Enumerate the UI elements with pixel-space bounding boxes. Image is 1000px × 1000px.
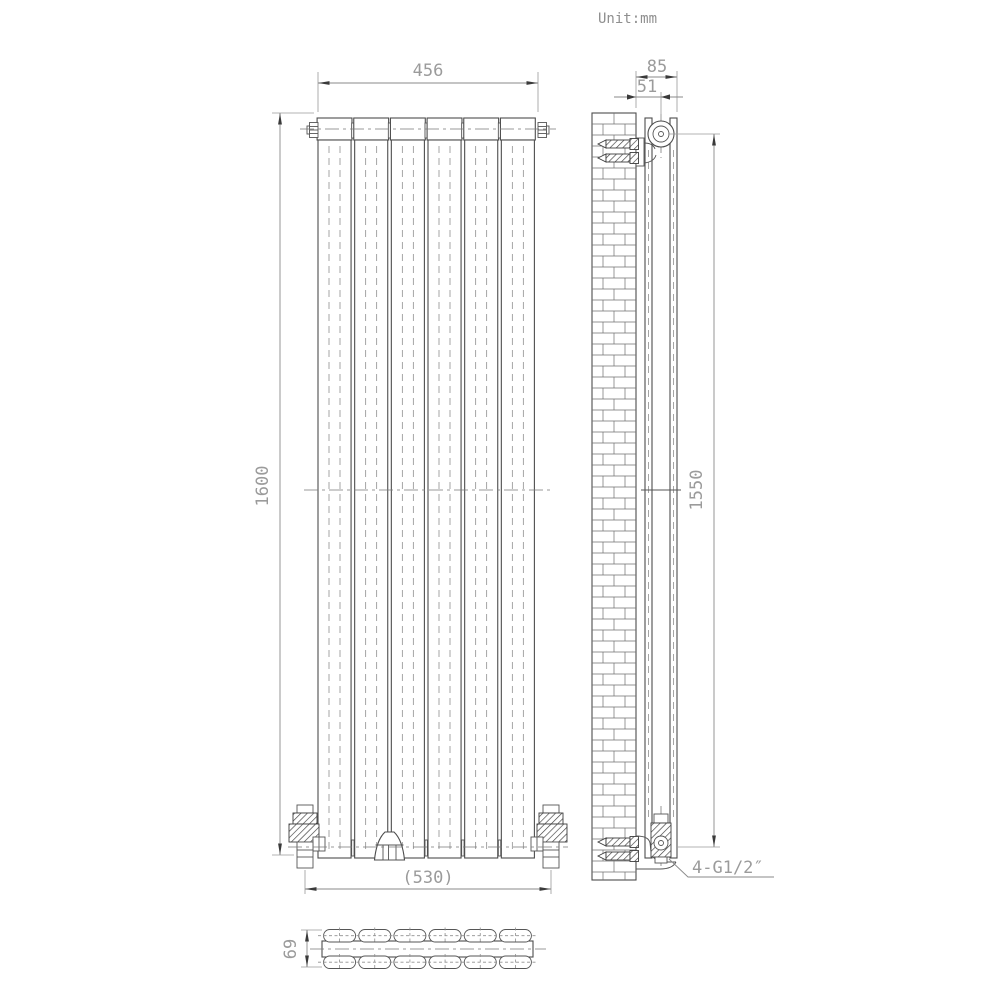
side-view bbox=[592, 113, 681, 880]
dim-overall-width: 456 bbox=[318, 61, 538, 112]
unit-label: Unit:mm bbox=[598, 11, 657, 27]
section-view bbox=[310, 928, 546, 971]
overall-width-label: 456 bbox=[413, 61, 444, 81]
bottom-valve-section bbox=[651, 806, 671, 866]
front-view bbox=[288, 118, 568, 868]
front-panels bbox=[317, 118, 535, 858]
left-end-plug-icon bbox=[307, 123, 318, 138]
right-end-plug-icon bbox=[538, 123, 549, 138]
valve-centres-label: (530) bbox=[402, 868, 453, 888]
dim-section-depth: 69 bbox=[281, 930, 322, 967]
wall-to-front-label: 85 bbox=[647, 57, 667, 77]
dim-valve-centres: (530) bbox=[305, 868, 551, 894]
dim-overall-height: 1600 bbox=[253, 113, 314, 855]
wall-to-pipe-centre-label: 51 bbox=[637, 77, 657, 97]
right-valve bbox=[531, 805, 567, 868]
wall-anchor-screws bbox=[598, 139, 639, 862]
section-depth-label: 69 bbox=[281, 939, 301, 959]
technical-drawing-canvas: 456 1600 (530) 85 51 bbox=[0, 0, 1000, 1000]
inlet-height-label: 1550 bbox=[687, 470, 707, 511]
radiator-dimension-sheet: 456 1600 (530) 85 51 bbox=[0, 0, 1000, 1000]
connection-thread-label: 4-G1/2″ bbox=[692, 858, 764, 878]
overall-height-label: 1600 bbox=[253, 466, 273, 507]
brick-hatch bbox=[592, 113, 636, 880]
connection-callout: 4-G1/2″ bbox=[669, 858, 774, 878]
